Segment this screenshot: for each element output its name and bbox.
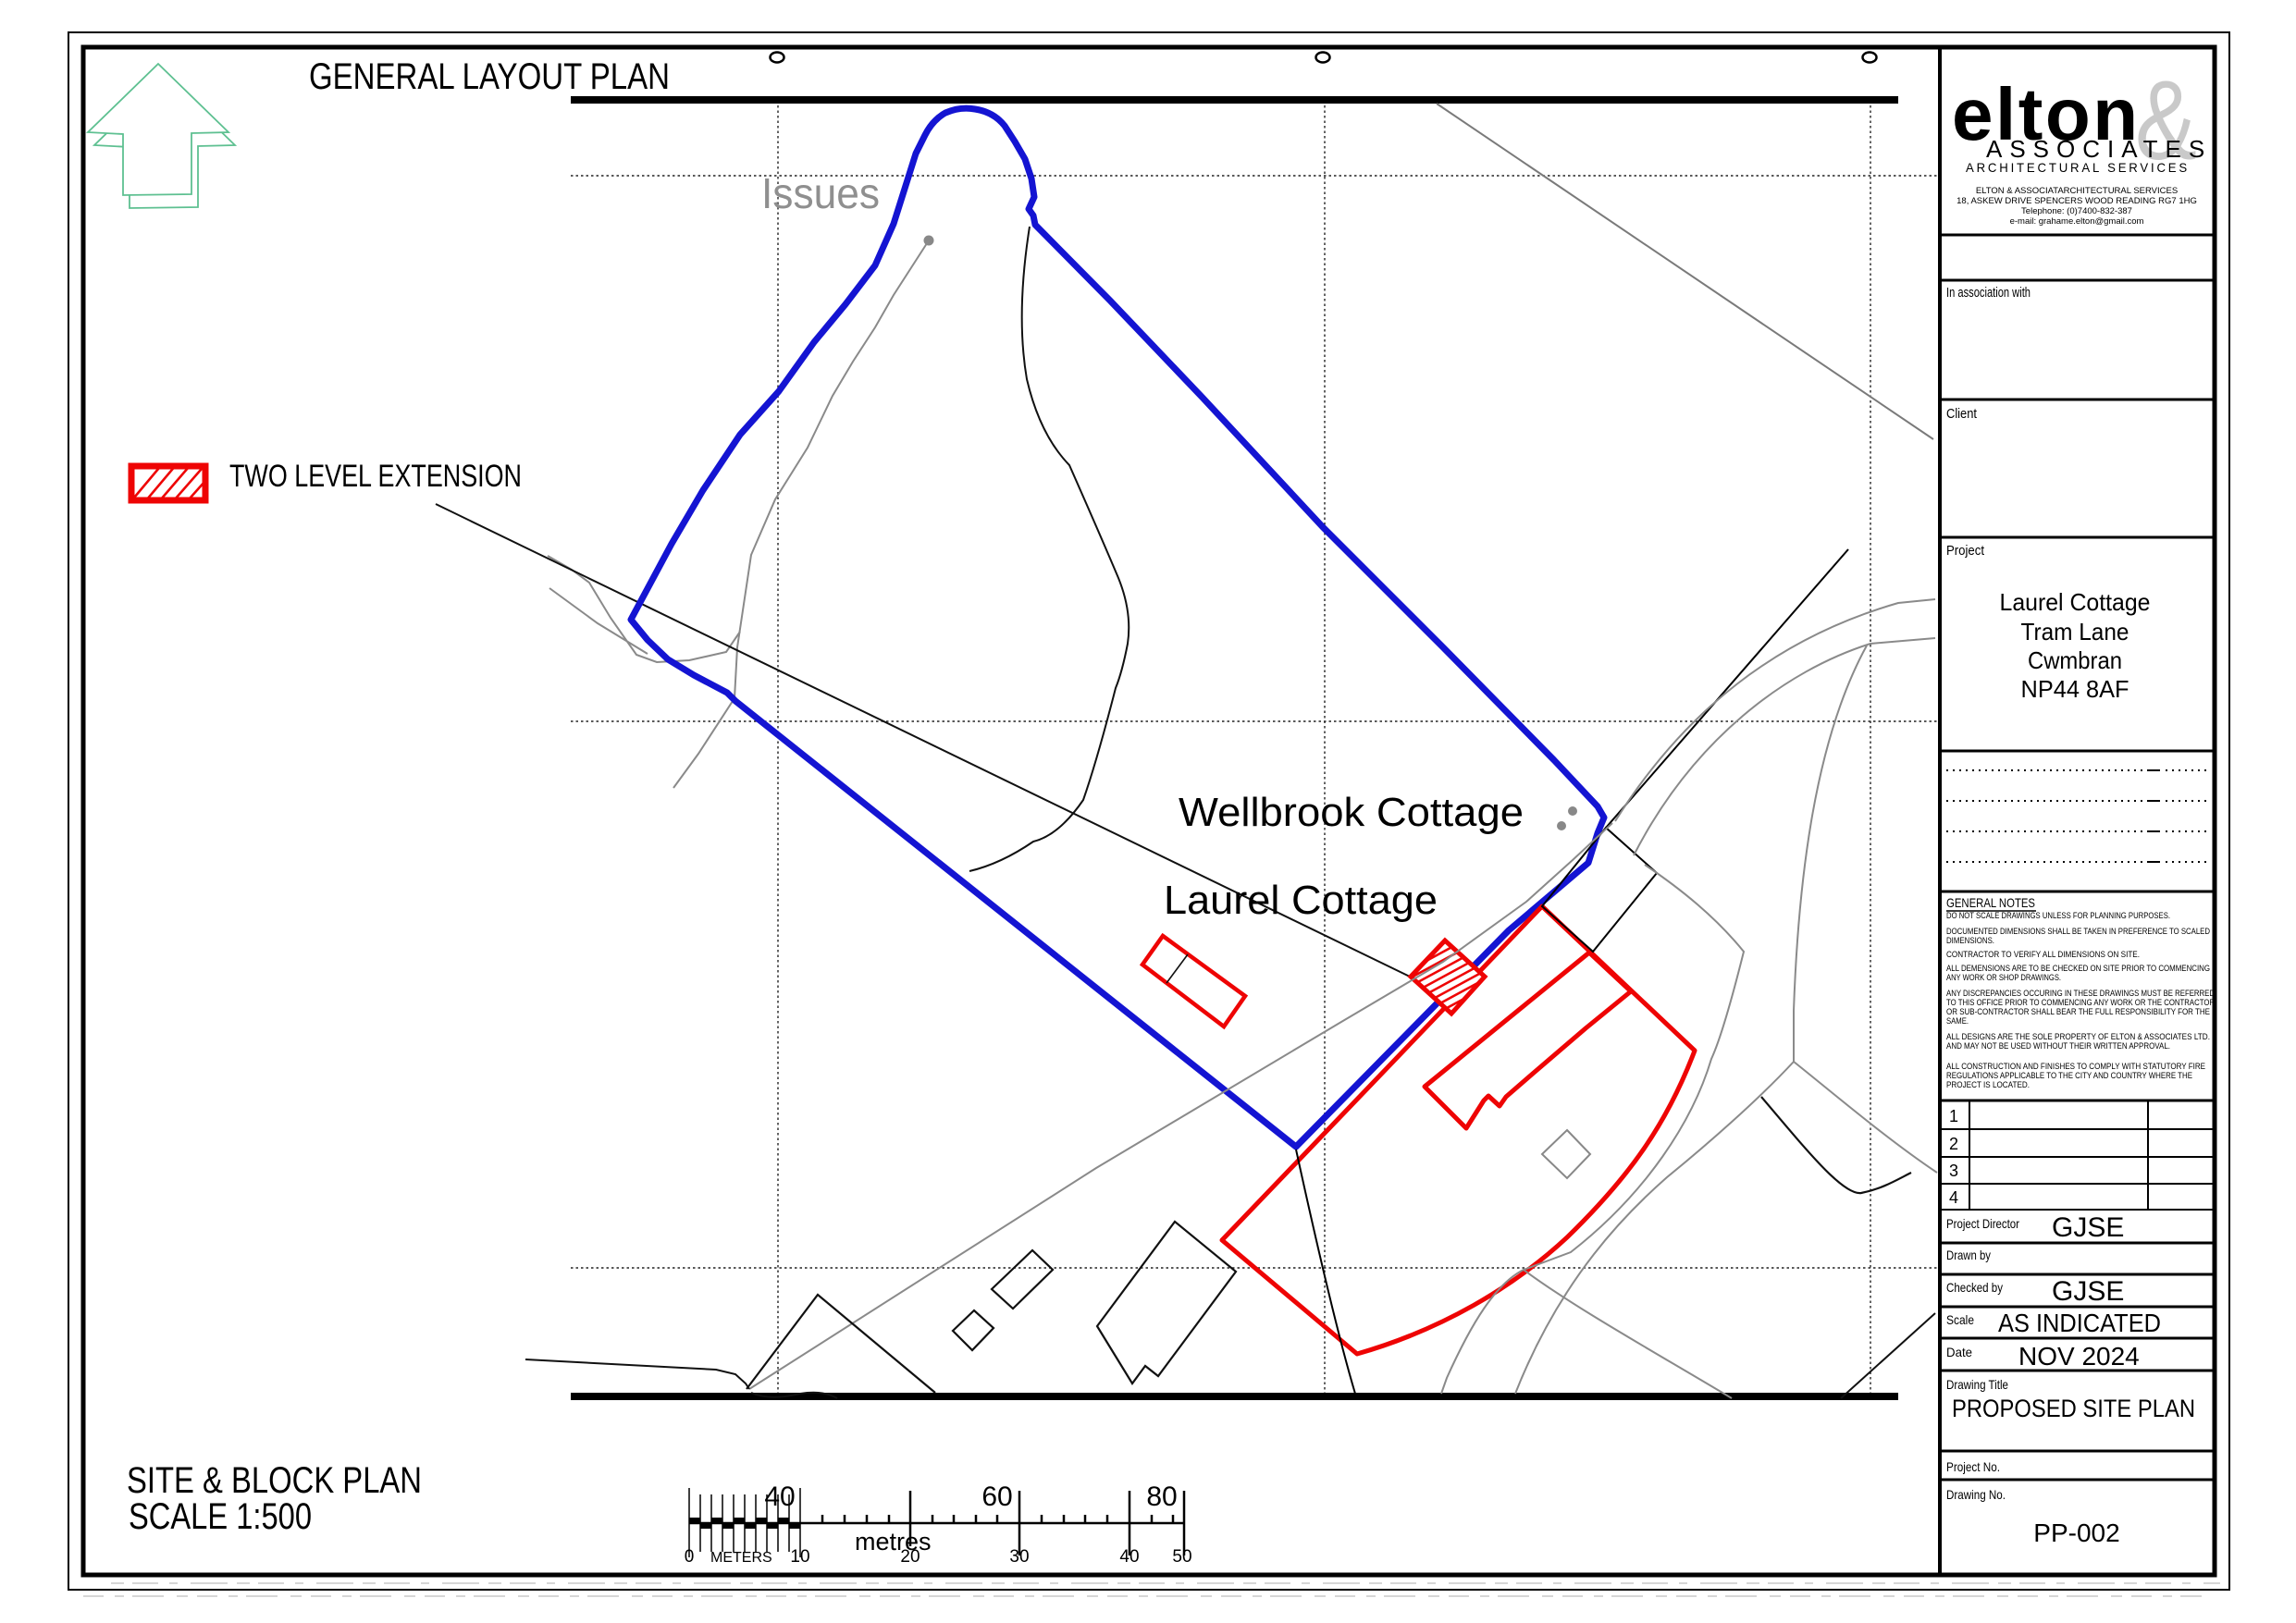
svg-text:GENERAL NOTES: GENERAL NOTES (1946, 895, 2035, 910)
svg-text:Project Director: Project Director (1946, 1216, 2019, 1231)
svg-text:Tram Lane: Tram Lane (2021, 618, 2129, 646)
svg-text:ANY WORK OR SHOP DRAWINGS.: ANY WORK OR SHOP DRAWINGS. (1946, 973, 2061, 983)
svg-text:SCALE 1:500: SCALE 1:500 (129, 1496, 312, 1537)
svg-text:PP-002: PP-002 (2033, 1518, 2119, 1547)
svg-text:Drawn by: Drawn by (1946, 1248, 1991, 1262)
svg-text:Client: Client (1946, 406, 1978, 422)
svg-text:40: 40 (764, 1482, 795, 1512)
svg-text:40: 40 (1119, 1547, 1139, 1567)
svg-text:metres: metres (855, 1528, 932, 1555)
svg-text:DO NOT SCALE DRAWINGS UNLESS F: DO NOT SCALE DRAWINGS UNLESS FOR PLANNIN… (1946, 911, 2170, 921)
svg-text:AS INDICATED: AS INDICATED (1998, 1309, 2161, 1337)
svg-text:3: 3 (1949, 1162, 1958, 1180)
svg-text:10: 10 (790, 1547, 809, 1567)
svg-text:Project: Project (1946, 543, 1985, 559)
svg-text:NOV 2024: NOV 2024 (2018, 1342, 2140, 1371)
svg-text:DIMENSIONS.: DIMENSIONS. (1946, 936, 1994, 946)
svg-text:Cwmbran: Cwmbran (2028, 646, 2122, 674)
svg-text:50: 50 (1172, 1547, 1191, 1567)
svg-text:PROJECT IS LOCATED.: PROJECT IS LOCATED. (1946, 1080, 2030, 1090)
svg-text:Checked by: Checked by (1946, 1280, 2003, 1295)
svg-text:SAME.: SAME. (1946, 1016, 1969, 1027)
svg-text:OR SUB-CONTRACTOR SHALL BEAR T: OR SUB-CONTRACTOR SHALL BEAR THE FULL RE… (1946, 1007, 2210, 1017)
svg-text:ARCHITECTURAL SERVICES: ARCHITECTURAL SERVICES (1966, 160, 2190, 175)
svg-text:Date: Date (1946, 1345, 1972, 1359)
svg-text:CONTRACTOR TO VERIFY ALL DIMEN: CONTRACTOR TO VERIFY ALL DIMENSIONS ON S… (1946, 950, 2140, 960)
svg-text:ELTON & ASSOCIATARCHITECTURAL: ELTON & ASSOCIATARCHITECTURAL SERVICES (1976, 186, 2178, 196)
svg-text:GENERAL LAYOUT PLAN: GENERAL LAYOUT PLAN (309, 56, 670, 97)
svg-text:Drawing Title: Drawing Title (1946, 1377, 2008, 1392)
svg-text:NP44 8AF: NP44 8AF (2021, 675, 2129, 703)
svg-text:Telephone: (0)7400-832-387: Telephone: (0)7400-832-387 (2021, 206, 2132, 216)
svg-text:2: 2 (1949, 1135, 1958, 1153)
svg-text:Wellbrook Cottage: Wellbrook Cottage (1179, 790, 1524, 835)
svg-text:ASSOCIATES: ASSOCIATES (1986, 135, 2212, 163)
svg-text:60: 60 (981, 1482, 1012, 1512)
svg-text:PROPOSED SITE PLAN: PROPOSED SITE PLAN (1952, 1395, 2195, 1422)
svg-text:30: 30 (1009, 1547, 1029, 1567)
svg-text:Scale: Scale (1946, 1312, 1974, 1327)
svg-text:Issues: Issues (761, 169, 880, 217)
svg-text:AND MAY NOT BE USED WITHOUT TH: AND MAY NOT BE USED WITHOUT THEIR WRITTE… (1946, 1041, 2170, 1051)
svg-text:e-mail: grahame.elton@gmail.co: e-mail: grahame.elton@gmail.com (2010, 216, 2144, 227)
svg-text:0: 0 (685, 1547, 695, 1567)
svg-text:4: 4 (1949, 1188, 1958, 1207)
svg-text:80: 80 (1146, 1482, 1177, 1512)
svg-text:GJSE: GJSE (2052, 1276, 2124, 1307)
svg-text:SITE & BLOCK PLAN: SITE & BLOCK PLAN (127, 1460, 422, 1501)
svg-text:1: 1 (1949, 1107, 1958, 1125)
svg-text:In association with: In association with (1946, 285, 2031, 301)
svg-text:18, ASKEW DRIVE SPENCERS WOOD: 18, ASKEW DRIVE SPENCERS WOOD READING RG… (1957, 196, 2197, 206)
svg-text:TWO LEVEL EXTENSION: TWO LEVEL EXTENSION (229, 459, 522, 494)
svg-text:Project No.: Project No. (1946, 1459, 2000, 1474)
svg-text:METERS: METERS (710, 1550, 772, 1566)
svg-text:GJSE: GJSE (2052, 1212, 2124, 1243)
svg-text:Laurel Cottage: Laurel Cottage (2000, 588, 2151, 616)
svg-text:Drawing No.: Drawing No. (1946, 1487, 2006, 1502)
svg-text:Laurel Cottage: Laurel Cottage (1164, 878, 1438, 923)
